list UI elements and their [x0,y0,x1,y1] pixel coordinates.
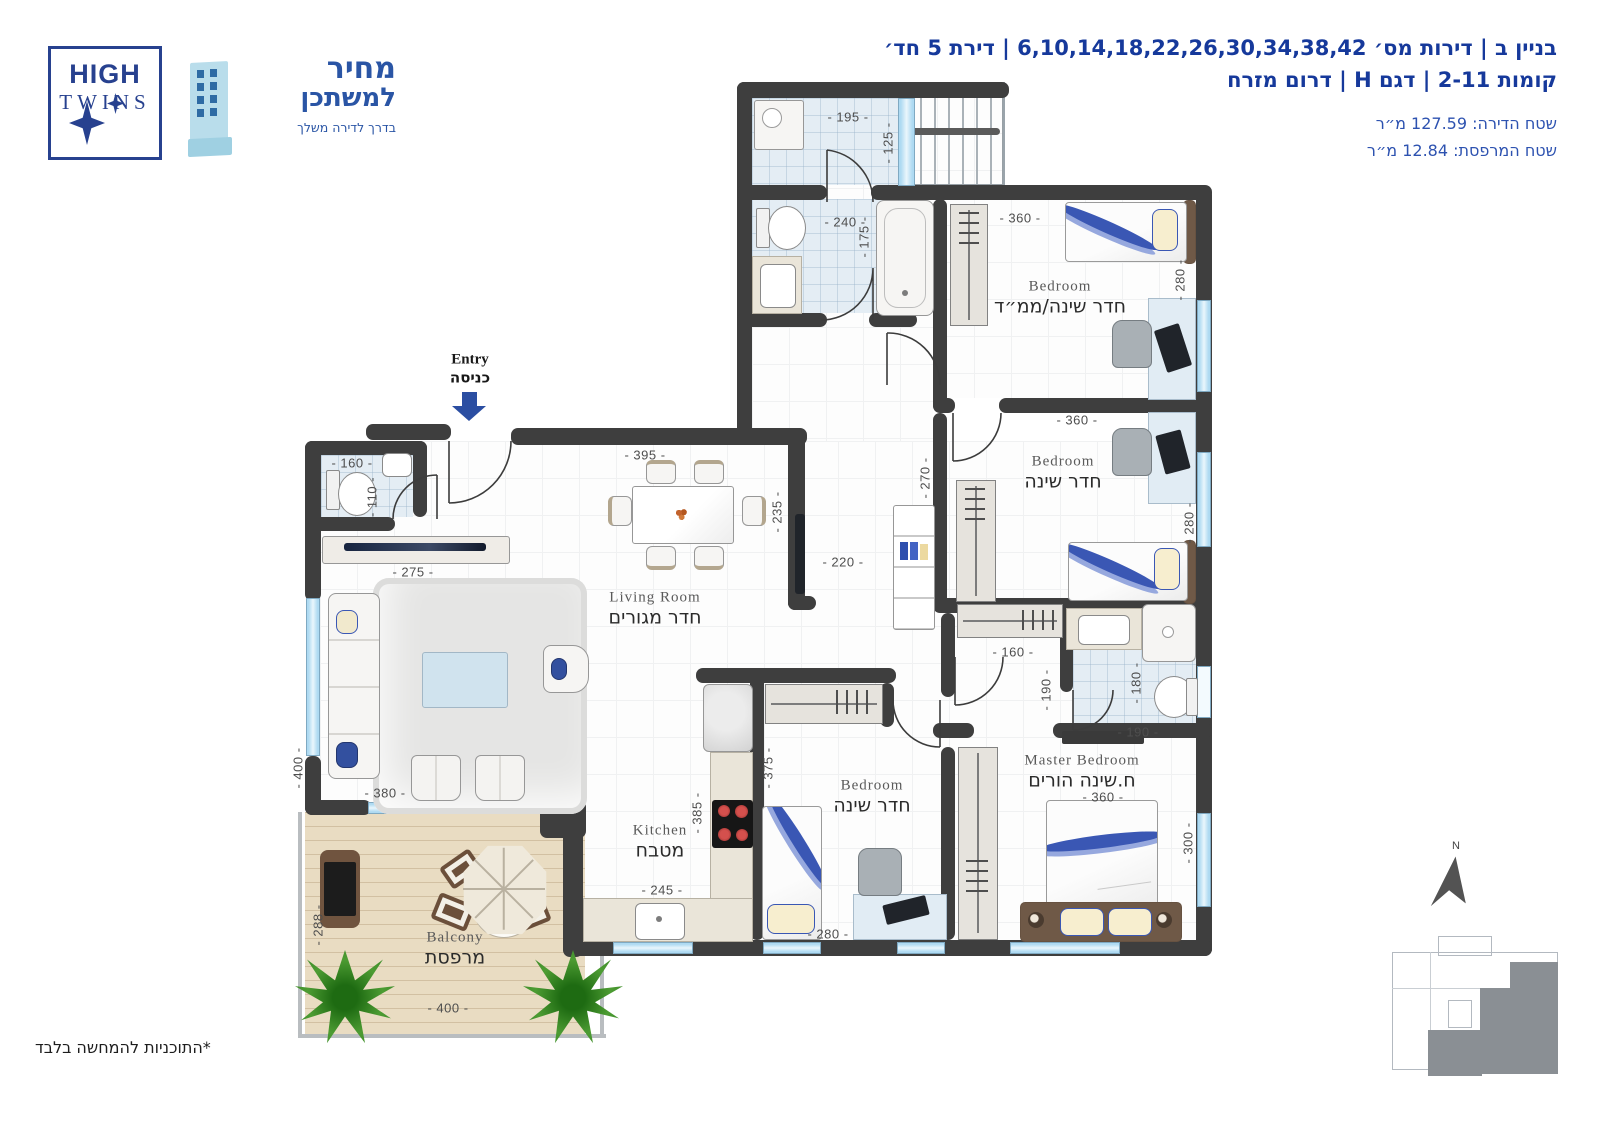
dim-label: - 220 - [822,555,863,570]
dining-chair [646,460,676,484]
dim-label: - 125 - [881,122,896,163]
dining-chair [646,546,676,570]
dim-label: - 160 - [992,645,1033,660]
room-label-balcony: Balcony מרפסת [425,930,485,969]
desk-chair [1112,320,1152,368]
room-label-living: Living Room חדר מגורים [608,590,701,629]
sofa-pillow [336,742,358,768]
dim-label: - 300 - [1181,822,1196,863]
dim-label: - 385 - [690,792,705,833]
wall [788,596,816,610]
dim-label: - 280 - [807,927,848,942]
burner [736,829,748,841]
dim-label: - 288 - [311,904,326,945]
armchair-pillow [551,658,567,680]
mechir-tagline: בדרך לדירה משלך [266,120,396,135]
sofa-pillow [336,610,358,634]
room-label-kitchen: Kitchen מטבח [633,823,687,862]
entry-label: Entry כניסה [450,352,490,387]
coffee-table [422,652,508,708]
pillow [1108,908,1152,936]
window [897,942,945,954]
entry-arrow-icon [462,392,477,406]
dim-label: - 280 - [1173,259,1188,300]
logo-twins-text: TWINS [51,90,159,115]
dim-label: - 380 - [364,786,405,801]
double-bed [1046,800,1158,914]
dim-label: - 360 - [1056,413,1097,428]
dining-chair [694,460,724,484]
entry-arrow-icon [452,406,486,421]
wall [737,82,752,445]
north-label: N [1452,840,1460,852]
burner [735,805,748,818]
floor [752,327,933,441]
wall [737,313,827,327]
desk-chair [858,848,902,896]
window [763,942,821,954]
wall [413,441,427,517]
wall [696,668,896,683]
books [910,542,918,560]
keyplan-highlight [1428,1030,1482,1076]
mechir-title: מחיר [266,54,396,84]
dim-label: - 235 - [770,491,785,532]
logo-high-text: HIGH [51,59,159,90]
dim-label: - 190 - [1039,669,1054,710]
bbq-top [324,862,356,916]
room-label-mamad: Bedroom חדר שינה/ממ״ד [994,279,1126,318]
wall [737,185,827,200]
toilet [768,206,806,250]
window [613,942,693,954]
toilet-tank [1186,678,1198,716]
wall [933,723,974,738]
dim-label: - 160 - [331,456,372,471]
dim-label: - 110 - [365,477,380,517]
dim-label: - 190 - [1117,725,1158,740]
window [1197,813,1211,907]
wall [563,810,583,957]
fridge [703,684,753,752]
wall [737,82,1009,98]
dim-label: - 360 - [1082,790,1123,805]
north-arrow-icon [1429,854,1470,909]
dim-label: - 275 - [392,565,433,580]
sideboard-top [344,543,486,551]
keyplan-core [1448,1000,1472,1028]
burner [718,805,730,817]
stair-rail [908,128,1000,135]
wall [933,398,955,413]
nightstand [1028,912,1044,928]
dim-label: - 280 - [1182,502,1197,543]
high-twins-logo: HIGH TWINS [48,46,162,160]
wall [933,413,947,612]
pillow [1060,908,1104,936]
dining-chair [608,496,632,526]
books [900,542,908,560]
dim-label: - 400 - [291,747,306,788]
entry-label-en: Entry [450,352,490,369]
room-label-bedroom2: Bedroom חדר שינה [1024,454,1101,493]
window [1197,452,1211,547]
wall [305,517,395,531]
nightstand [1156,912,1172,928]
entry-label-he: כניסה [450,369,490,387]
stair-boundary [1003,82,1005,188]
table-centerpiece [674,508,688,520]
pillow [1154,548,1180,590]
window [306,598,320,756]
dim-label: - 180 - [1129,662,1144,703]
wall [999,398,1212,413]
dim-label: - 175 - [857,216,872,257]
wall [941,613,955,697]
burner [718,828,731,841]
dim-label: - 195 - [827,110,868,125]
bookshelf [893,505,935,630]
keyplan-highlight [1480,988,1558,1074]
building-icon [190,61,228,141]
sink [760,264,796,308]
shower-drain [1162,626,1174,638]
dining-chair [742,496,766,526]
building-units-title: בניין ב | דירות מס׳ 6,10,14,18,22,26,30,… [884,36,1557,60]
window [1197,666,1211,718]
mechir-lamishtakan-logo: מחיר למשתכן בדרך לדירה משלך [186,52,396,162]
dim-label: - 270 - [918,457,933,498]
dim-label: - 375 - [761,747,776,788]
disclaimer-note: *התוכניות להמחשה בלבד [35,1038,211,1057]
wall [871,185,1212,200]
wall [366,424,451,440]
books [920,544,928,560]
washer-drum [762,108,782,128]
mechir-subtitle: למשתכן [266,84,396,114]
window [898,98,915,186]
building-base-icon [188,137,232,157]
faucet [656,916,662,922]
tv [795,514,805,594]
window [1197,300,1211,392]
dim-label: - 360 - [999,211,1040,226]
wall [933,199,947,412]
sink [1078,615,1130,645]
drain [902,290,908,296]
floor-plan-page: HIGH TWINS מחיר למשתכן בדרך לדירה משלך ב… [0,0,1600,1131]
sink [382,453,412,477]
keyplan-wing [1438,936,1492,956]
lounge-chair [475,755,525,801]
balcony-railing [298,812,302,1038]
dim-label: - 395 - [624,448,665,463]
room-label-master: Master Bedroom ח.שינה הורים [1024,753,1139,792]
keyplan-highlight [1510,962,1558,992]
pillow [1152,209,1178,251]
room-label-bedroom3: Bedroom חדר שינה [833,778,910,817]
window [1010,942,1120,954]
wall [511,428,807,445]
dim-label: - 245 - [641,883,682,898]
desk-chair [1112,428,1152,476]
lounge-chair [411,755,461,801]
wall [305,800,371,815]
dim-label: - 400 - [427,1001,468,1016]
dining-chair [694,546,724,570]
